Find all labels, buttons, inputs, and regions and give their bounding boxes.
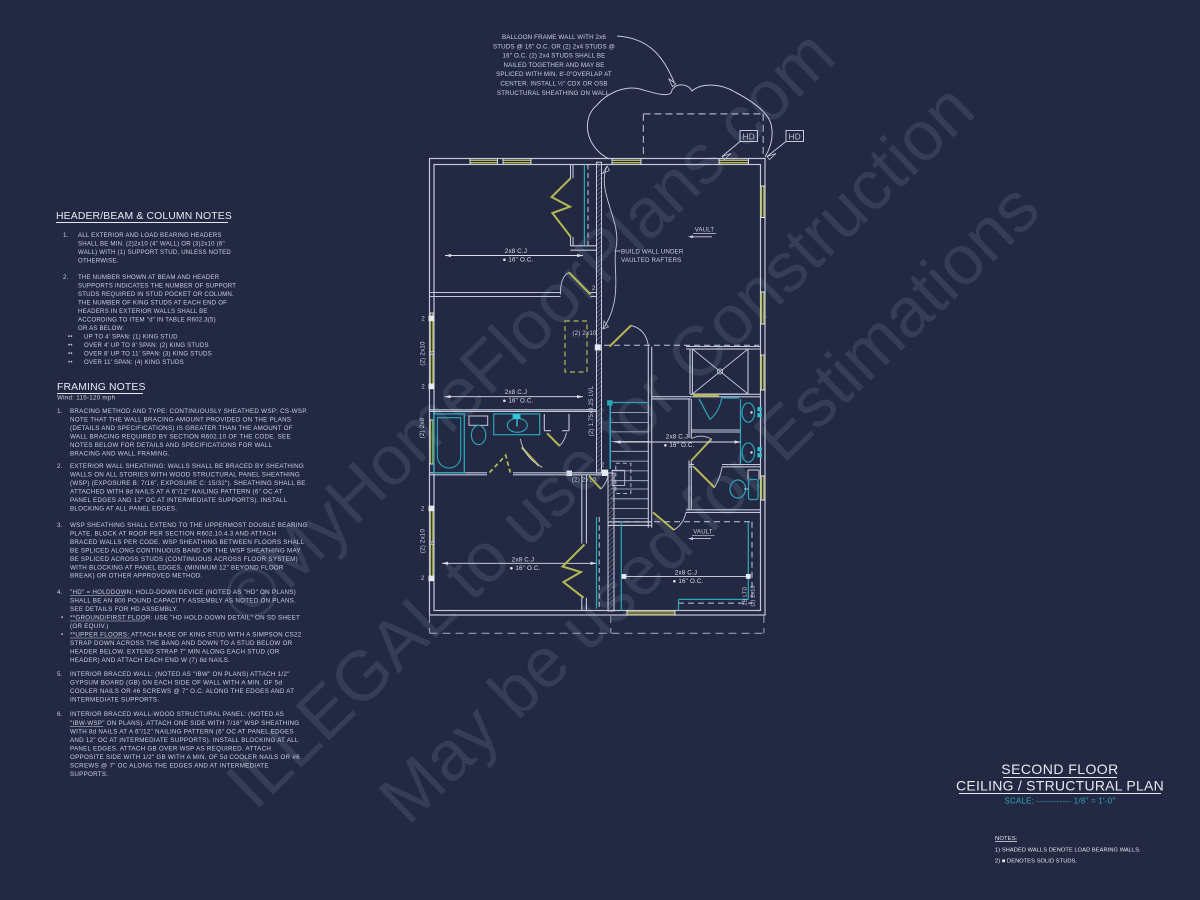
svg-text:INTERIOR BRACED WALL: (NOTED A: INTERIOR BRACED WALL: (NOTED AS "IBW" ON… <box>70 671 290 678</box>
svg-text:FRAMING NOTES: FRAMING NOTES <box>57 382 146 393</box>
svg-text:EXTERIOR WALL SHEATHING: WALLS: EXTERIOR WALL SHEATHING: WALLS SHALL BE … <box>70 463 304 470</box>
svg-text:••: •• <box>68 351 73 358</box>
svg-text:PLATE. BLOCK AT ROOF PER SECTI: PLATE. BLOCK AT ROOF PER SECTION R602.10… <box>70 530 276 537</box>
svg-text:ACCORDING TO ITEM "d" IN TABLE: ACCORDING TO ITEM "d" IN TABLE R602.3(5) <box>78 317 216 324</box>
svg-text:NOTES:: NOTES: <box>995 836 1018 842</box>
svg-text:VAULT: VAULT <box>693 530 713 536</box>
svg-text:UP TO 4' SPAN: (1) KING STUD: UP TO 4' SPAN: (1) KING STUD <box>84 334 178 341</box>
svg-text:HEADERS IN EXTERIOR WALLS SHAL: HEADERS IN EXTERIOR WALLS SHALL BE <box>78 308 208 315</box>
svg-text:2x8 C.J: 2x8 C.J <box>666 434 688 441</box>
svg-text:OVER 4' UP TO 8' SPAN: (2) KIN: OVER 4' UP TO 8' SPAN: (2) KING STUDS <box>84 342 209 349</box>
svg-text:(DETAILS AND SPECIFICATIONS) I: (DETAILS AND SPECIFICATIONS) IS GREATER … <box>70 425 293 432</box>
svg-text:PANEL EDGES AND 12" OC AT INTE: PANEL EDGES AND 12" OC AT INTERMEDIATE S… <box>70 497 288 504</box>
svg-text:**GROUND/FIRST FLOOR: USE "HD: **GROUND/FIRST FLOOR: USE "HD HOLD-DOWN … <box>70 615 300 622</box>
svg-text:••: •• <box>68 359 73 366</box>
svg-text:ATTACHED WITH 8d NAILS AT A 6": ATTACHED WITH 8d NAILS AT A 6"/12" NAILI… <box>70 488 283 495</box>
svg-text:WALL) WITH (1) SUPPORT STUD, U: WALL) WITH (1) SUPPORT STUD, UNLESS NOTE… <box>78 249 231 256</box>
svg-text:SPLICED WITH MIN. 8'-0"OVERLAP: SPLICED WITH MIN. 8'-0"OVERLAP AT <box>496 71 612 78</box>
svg-text:BE SPLICED ALONG CONTINUOUS BA: BE SPLICED ALONG CONTINUOUS BAND OR THE … <box>70 547 301 554</box>
svg-text:OVER 8' UP TO 11' SPAN: (3) KI: OVER 8' UP TO 11' SPAN: (3) KING STUDS <box>84 351 212 358</box>
svg-text:NOTES BELOW FOR DETAILS AND SP: NOTES BELOW FOR DETAILS AND SPECIFICATIO… <box>70 442 273 449</box>
svg-text:WSP SHEATHING SHALL EXTEND TO: WSP SHEATHING SHALL EXTEND TO THE UPPERM… <box>70 522 308 529</box>
svg-text:OR AS BELOW:: OR AS BELOW: <box>78 325 124 332</box>
svg-text:PANEL EDGES. ATTACH GB OVER WS: PANEL EDGES. ATTACH GB OVER WSP AS REQUI… <box>70 746 271 753</box>
svg-text:STUDS REQUIRED IN STUD POCKET: STUDS REQUIRED IN STUD POCKET OR COLUMN. <box>78 291 234 298</box>
svg-text:BUILD WALL UNDER: BUILD WALL UNDER <box>621 249 684 256</box>
svg-text:**UPPER FLOORS: ATTACH BASE OF: **UPPER FLOORS: ATTACH BASE OF KING STUD… <box>70 632 302 639</box>
svg-text:AND 12" OC AT INTERMEDIATE SUP: AND 12" OC AT INTERMEDIATE SUPPORTS). IN… <box>70 737 299 744</box>
svg-text:WITH BLOCKING AT PANEL EDGES.: WITH BLOCKING AT PANEL EDGES. (MINIMUM 1… <box>70 564 284 571</box>
svg-text:1.: 1. <box>57 408 63 415</box>
svg-text:BRACED WALLS PER CODE. WSP SHE: BRACED WALLS PER CODE. WSP SHEATHING BET… <box>70 539 305 546</box>
svg-text:2.: 2. <box>57 463 63 470</box>
svg-text:2.: 2. <box>63 274 69 281</box>
svg-text:"IBW-WSP" ON PLANS). ATTACH ON: "IBW-WSP" ON PLANS). ATTACH ONE SIDE WIT… <box>70 720 299 727</box>
svg-text:NAILED TOGETHER AND MAY BE: NAILED TOGETHER AND MAY BE <box>503 62 604 69</box>
svg-text:● 16" O.C.: ● 16" O.C. <box>673 578 704 585</box>
svg-text:SHALL BE AN 800 POUND CAPACITY: SHALL BE AN 800 POUND CAPACITY ASSEMBLY … <box>70 598 296 605</box>
svg-text:COOLER NAILS OR #6 SCREWS @ 7": COOLER NAILS OR #6 SCREWS @ 7" O.C. ALON… <box>70 688 294 695</box>
svg-text:OVER 11' SPAN: (4) KING STUDS: OVER 11' SPAN: (4) KING STUDS <box>84 359 184 366</box>
svg-text:•: • <box>61 632 63 639</box>
svg-text:BRACING METHOD AND TYPE: CONTI: BRACING METHOD AND TYPE: CONTINUOUSLY SH… <box>70 408 308 415</box>
svg-text:2x8 C.J: 2x8 C.J <box>505 248 527 255</box>
svg-text:CENTER. INSTALL ½" CDX OR OSB: CENTER. INSTALL ½" CDX OR OSB <box>500 81 607 88</box>
svg-text:HEADER BELOW. EXTEND STRAP 7": HEADER BELOW. EXTEND STRAP 7" MIN ALONG … <box>70 649 280 656</box>
svg-text:BRACING AND WALL FRAMING.: BRACING AND WALL FRAMING. <box>70 450 170 457</box>
svg-text:WALLS ON ALL STORIES WITH WOOD: WALLS ON ALL STORIES WITH WOOD STRUCTURA… <box>70 471 300 478</box>
svg-text:16" O.C. (2) 2x4 STUDS SHALL B: 16" O.C. (2) 2x4 STUDS SHALL BE <box>503 53 606 60</box>
svg-text:VAULTED RAFTERS: VAULTED RAFTERS <box>621 257 681 264</box>
svg-text:"HD" = HOLDDOWN: HOLD-DOWN DEV: "HD" = HOLDDOWN: HOLD-DOWN DEVICE (NOTED… <box>70 589 296 596</box>
svg-text:(2) 2x10: (2) 2x10 <box>572 330 597 337</box>
svg-text:INTERIOR BRACED WALL-WOOD STRU: INTERIOR BRACED WALL-WOOD STRUCTURAL PAN… <box>70 711 284 718</box>
svg-text:STRAP DOWN ACROSS THE BAND AND: STRAP DOWN ACROSS THE BAND AND DOWN TO A… <box>70 640 293 647</box>
svg-text:SHALL BE MIN. (2)2x10 (4" WALL: SHALL BE MIN. (2)2x10 (4" WALL) OR (3)2x… <box>78 241 225 248</box>
svg-text:1B LTD: 1B LTD <box>743 586 749 605</box>
svg-text:4.: 4. <box>57 589 63 596</box>
svg-text:VAULT: VAULT <box>695 228 715 234</box>
svg-text:2x8 C.J: 2x8 C.J <box>675 570 697 577</box>
svg-text:(2) 1.75x9.25 LVL: (2) 1.75x9.25 LVL <box>589 385 595 436</box>
svg-text:BALLOON FRAME WALL WITH 2x6: BALLOON FRAME WALL WITH 2x6 <box>502 34 606 41</box>
svg-text:BE SPLICED ACROSS STUDS (CONTI: BE SPLICED ACROSS STUDS (CONTINUOUS ACRO… <box>70 556 298 563</box>
svg-text:SUPPORTS.: SUPPORTS. <box>70 771 108 778</box>
svg-text:WALL BRACING REQUIRED BY SECTI: WALL BRACING REQUIRED BY SECTION R602.10… <box>70 433 291 440</box>
svg-text:ALL EXTERIOR AND LOAD BEARING: ALL EXTERIOR AND LOAD BEARING HEADERS <box>78 232 222 239</box>
svg-text:6.: 6. <box>57 711 63 718</box>
svg-text:(2) 2x8: (2) 2x8 <box>419 417 426 438</box>
svg-text:2) ■ DENOTES SOLID STUDS.: 2) ■ DENOTES SOLID STUDS. <box>995 859 1077 865</box>
svg-text:SCALE: ------------ 1/8" = 1'-: SCALE: ------------ 1/8" = 1'-0" <box>1005 797 1116 806</box>
svg-text:STRUCTURAL SHEATHING ON WALL.: STRUCTURAL SHEATHING ON WALL. <box>497 90 611 97</box>
svg-text:● 16" O.C.: ● 16" O.C. <box>664 442 695 449</box>
svg-text:(2) 2x10: (2) 2x10 <box>420 341 427 366</box>
svg-text:••: •• <box>68 342 73 349</box>
svg-text:1.: 1. <box>63 232 69 239</box>
svg-text:(OR EQUIV.): (OR EQUIV.) <box>70 623 109 630</box>
svg-text:THE NUMBER SHOWN AT BEAM AND H: THE NUMBER SHOWN AT BEAM AND HEADER <box>78 274 220 281</box>
svg-text:(2) 2x10: (2) 2x10 <box>751 585 757 606</box>
svg-text:•: • <box>61 615 63 622</box>
svg-text:NOTE THAT THE WALL BRACING AMO: NOTE THAT THE WALL BRACING AMOUNT PROVID… <box>70 416 291 423</box>
svg-text:HD: HD <box>743 132 755 141</box>
svg-text:HEADER) AND ATTACH EACH END W: HEADER) AND ATTACH EACH END W (7) 8d NAI… <box>70 657 230 664</box>
svg-text:CEILING / STRUCTURAL PLAN: CEILING / STRUCTURAL PLAN <box>956 778 1164 794</box>
svg-text:SUPPORTS INDICATES THE NUMBER: SUPPORTS INDICATES THE NUMBER OF SUPPORT <box>78 283 236 290</box>
svg-text:THE NUMBER OF KING STUDS AT EA: THE NUMBER OF KING STUDS AT EACH END OF <box>78 300 227 307</box>
svg-text:OPPOSITE SIDE WITH 1/2" GB WIT: OPPOSITE SIDE WITH 1/2" GB WITH A MIN. O… <box>70 754 300 761</box>
svg-text:GYPSUM BOARD (GB) ON EACH SIDE: GYPSUM BOARD (GB) ON EACH SIDE OF WALL W… <box>70 680 282 687</box>
svg-text:Wind: 115-120 mph: Wind: 115-120 mph <box>57 395 116 402</box>
svg-text:SEE DETAILS FOR HD ASSEMBLY.: SEE DETAILS FOR HD ASSEMBLY. <box>70 606 178 613</box>
svg-text:BLOCKING AT ALL PANEL EDGES.: BLOCKING AT ALL PANEL EDGES. <box>70 505 177 512</box>
svg-text:OTHERWISE.: OTHERWISE. <box>78 258 119 265</box>
svg-text:••: •• <box>68 334 73 341</box>
svg-text:● 16" O.C.: ● 16" O.C. <box>510 565 541 572</box>
svg-text:INTERMEDIATE SUPPORTS.: INTERMEDIATE SUPPORTS. <box>70 697 159 704</box>
svg-text:HD: HD <box>789 132 801 141</box>
svg-text:(WSP) (EXPOSURE B: 7/16", EXPO: (WSP) (EXPOSURE B: 7/16", EXPOSURE C: 15… <box>70 480 306 487</box>
svg-text:2x8 C.J: 2x8 C.J <box>505 389 527 396</box>
svg-text:SCREWS @ 7" OC ALONG THE EDGES: SCREWS @ 7" OC ALONG THE EDGES AND AT IN… <box>70 763 269 770</box>
svg-text:2x8 C.J: 2x8 C.J <box>512 557 534 564</box>
svg-text:HEADER/BEAM & COLUMN NOTES: HEADER/BEAM & COLUMN NOTES <box>56 211 232 222</box>
svg-text:WITH 8d NAILS AT A 6"/12" NAIL: WITH 8d NAILS AT A 6"/12" NAILING PATTER… <box>70 729 294 736</box>
svg-text:3.: 3. <box>57 522 63 529</box>
svg-text:BREAK) OR OTHER APPROVED METHO: BREAK) OR OTHER APPROVED METHOD. <box>70 573 203 580</box>
svg-text:● 16" O.C.: ● 16" O.C. <box>503 397 534 404</box>
svg-text:(2) 2x10: (2) 2x10 <box>420 528 427 553</box>
svg-text:1) SHADED WALLS DENOTE LOAD BE: 1) SHADED WALLS DENOTE LOAD BEARING WALL… <box>995 848 1141 854</box>
svg-text:● 16" O.C.: ● 16" O.C. <box>503 256 534 263</box>
svg-text:STUDS @ 16" O.C. OR (2) 2x4 ST: STUDS @ 16" O.C. OR (2) 2x4 STUDS @ <box>493 43 615 50</box>
svg-text:SECOND FLOOR: SECOND FLOOR <box>1001 761 1118 777</box>
svg-text:5.: 5. <box>57 671 63 678</box>
